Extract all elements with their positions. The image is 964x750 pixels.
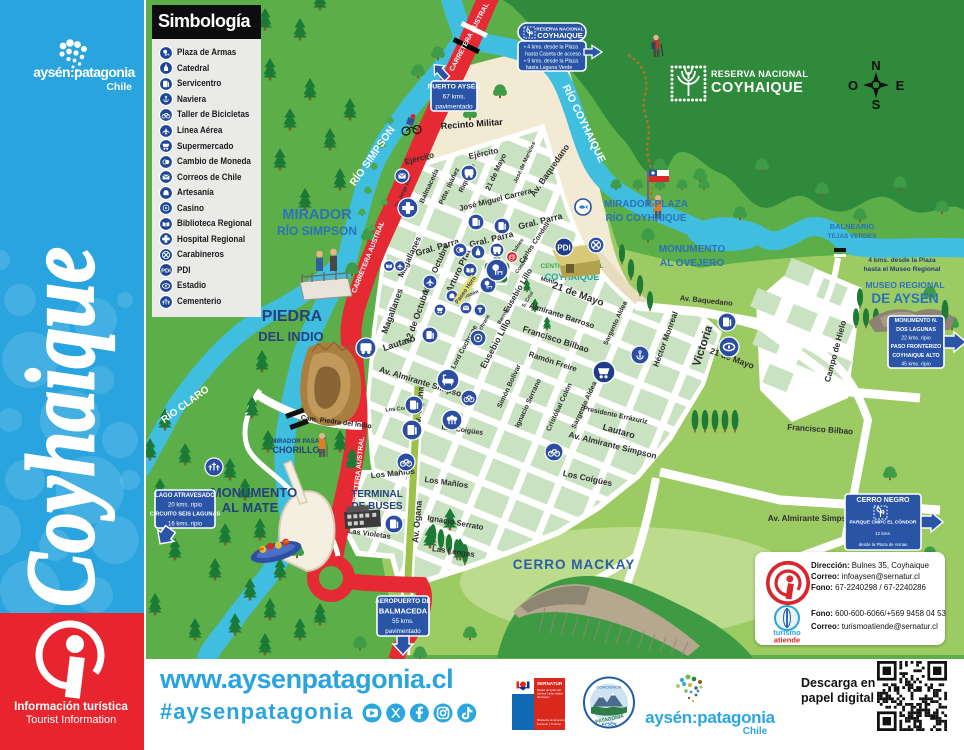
svg-text:PUERTO AYSÉN: PUERTO AYSÉN	[428, 81, 481, 90]
svg-text:AEROPUERTO DE: AEROPUERTO DE	[375, 598, 431, 605]
svg-text:TEJAS VERDES: TEJAS VERDES	[828, 233, 877, 240]
svg-text:E: E	[896, 78, 905, 93]
svg-text:DEL INDIO: DEL INDIO	[258, 329, 324, 344]
svg-text:AL MATE: AL MATE	[222, 500, 279, 515]
svg-text:CERRO MACKAY: CERRO MACKAY	[513, 557, 636, 572]
svg-text:pavimentado: pavimentado	[385, 628, 421, 635]
svg-text:PDI: PDI	[557, 244, 571, 253]
svg-text:S: S	[872, 97, 881, 112]
svg-text:Fomento y Turismo: Fomento y Turismo	[537, 722, 561, 726]
svg-text:• 9 kms. desde la Plaza: • 9 kms. desde la Plaza	[524, 59, 578, 65]
svg-text:MONUMENTO N.: MONUMENTO N.	[895, 318, 938, 324]
svg-text:MIRADOR: MIRADOR	[282, 207, 352, 223]
svg-text:MIRADOR PLAZA: MIRADOR PLAZA	[604, 199, 688, 210]
svg-text:Chile: Chile	[743, 726, 768, 737]
svg-text:Región de Aysén del: Región de Aysén del	[537, 688, 561, 692]
svg-text:COYHAIQUE: COYHAIQUE	[537, 31, 582, 40]
svg-text:TERMINAL: TERMINAL	[351, 489, 403, 500]
svg-text:DOS LAGUNAS: DOS LAGUNAS	[896, 327, 936, 333]
svg-text:20 kms. ripio: 20 kms. ripio	[168, 502, 203, 508]
svg-text:hasta Caseta de acceso: hasta Caseta de acceso	[525, 52, 581, 58]
svg-text:atiende: atiende	[774, 636, 800, 645]
svg-text:55 kms.: 55 kms.	[392, 618, 414, 625]
svg-text:O: O	[848, 78, 858, 93]
svg-text:PASO FRONTERIZO: PASO FRONTERIZO	[891, 344, 942, 350]
svg-text:12 kms.: 12 kms.	[875, 531, 891, 536]
svg-text:CIRCUITO SEIS LAGUNAS: CIRCUITO SEIS LAGUNAS	[150, 512, 221, 518]
svg-text:MIRADOR PASAJE: MIRADOR PASAJE	[271, 438, 327, 445]
svg-text:22 kms. ripio: 22 kms. ripio	[901, 336, 931, 342]
svg-text:aysén:patagonia: aysén:patagonia	[645, 708, 775, 727]
svg-text:PIEDRA: PIEDRA	[262, 308, 323, 325]
svg-text:45 kms. ripio: 45 kms. ripio	[901, 362, 931, 368]
svg-text:Coyhaique: Coyhaique	[7, 247, 114, 607]
svg-text:Información turística: Información turística	[14, 701, 128, 713]
svg-text:Tourist Information: Tourist Information	[26, 714, 116, 726]
svg-text:MUSEO REGIONAL: MUSEO REGIONAL	[865, 280, 944, 290]
svg-text:MONUMENTO: MONUMENTO	[659, 244, 726, 255]
svg-text:Av. Almirante Simpson: Av. Almirante Simpson	[768, 514, 856, 523]
svg-text:N: N	[871, 58, 880, 73]
svg-text:COYHAIQUE ALTO: COYHAIQUE ALTO	[892, 353, 939, 359]
svg-text:67 kms.: 67 kms.	[443, 93, 466, 100]
svg-text:CHORILLOS: CHORILLOS	[273, 445, 326, 455]
svg-text:pavimentado: pavimentado	[435, 103, 473, 110]
svg-text:General Carlos Ibáñez: General Carlos Ibáñez	[537, 692, 564, 696]
svg-text:hasta Laguna Verde: hasta Laguna Verde	[526, 65, 573, 71]
svg-text:SERNATUR: SERNATUR	[537, 681, 563, 686]
svg-text:desde la Plaza de Armas: desde la Plaza de Armas	[859, 542, 908, 547]
svg-text:BALNEARIO: BALNEARIO	[830, 222, 875, 231]
svg-text:hasta el Museo Regional: hasta el Museo Regional	[864, 266, 941, 273]
svg-text:RESERVA NACIONAL: RESERVA NACIONAL	[711, 69, 808, 79]
svg-text:@: @	[508, 253, 515, 262]
svg-text:del Campo: del Campo	[537, 695, 550, 699]
svg-text:DE AYSÉN: DE AYSÉN	[871, 291, 938, 306]
svg-text:• 4 kms. desde la Plaza: • 4 kms. desde la Plaza	[524, 45, 578, 51]
svg-text:COYHAIQUE: COYHAIQUE	[711, 80, 803, 96]
svg-text:CONCIENCIA: CONCIENCIA	[596, 685, 621, 690]
svg-text:4 kms. desde la Plaza: 4 kms. desde la Plaza	[868, 257, 936, 264]
svg-text:RÍO SIMPSON: RÍO SIMPSON	[277, 223, 357, 238]
svg-text:BALMACEDA: BALMACEDA	[379, 607, 428, 616]
svg-text:LAGO ATRAVESADO: LAGO ATRAVESADO	[155, 493, 215, 499]
svg-text:RÍO COYHAIQUE: RÍO COYHAIQUE	[605, 211, 686, 224]
svg-text:AYSÉN: AYSÉN	[601, 720, 616, 727]
svg-text:MONUMENTO: MONUMENTO	[211, 485, 297, 500]
svg-text:PDI: PDI	[161, 269, 171, 275]
svg-text:AL OVEJERO: AL OVEJERO	[660, 258, 724, 269]
svg-text:16 kms. ripio: 16 kms. ripio	[168, 521, 203, 527]
svg-text:CERRO NEGRO: CERRO NEGRO	[857, 497, 910, 504]
